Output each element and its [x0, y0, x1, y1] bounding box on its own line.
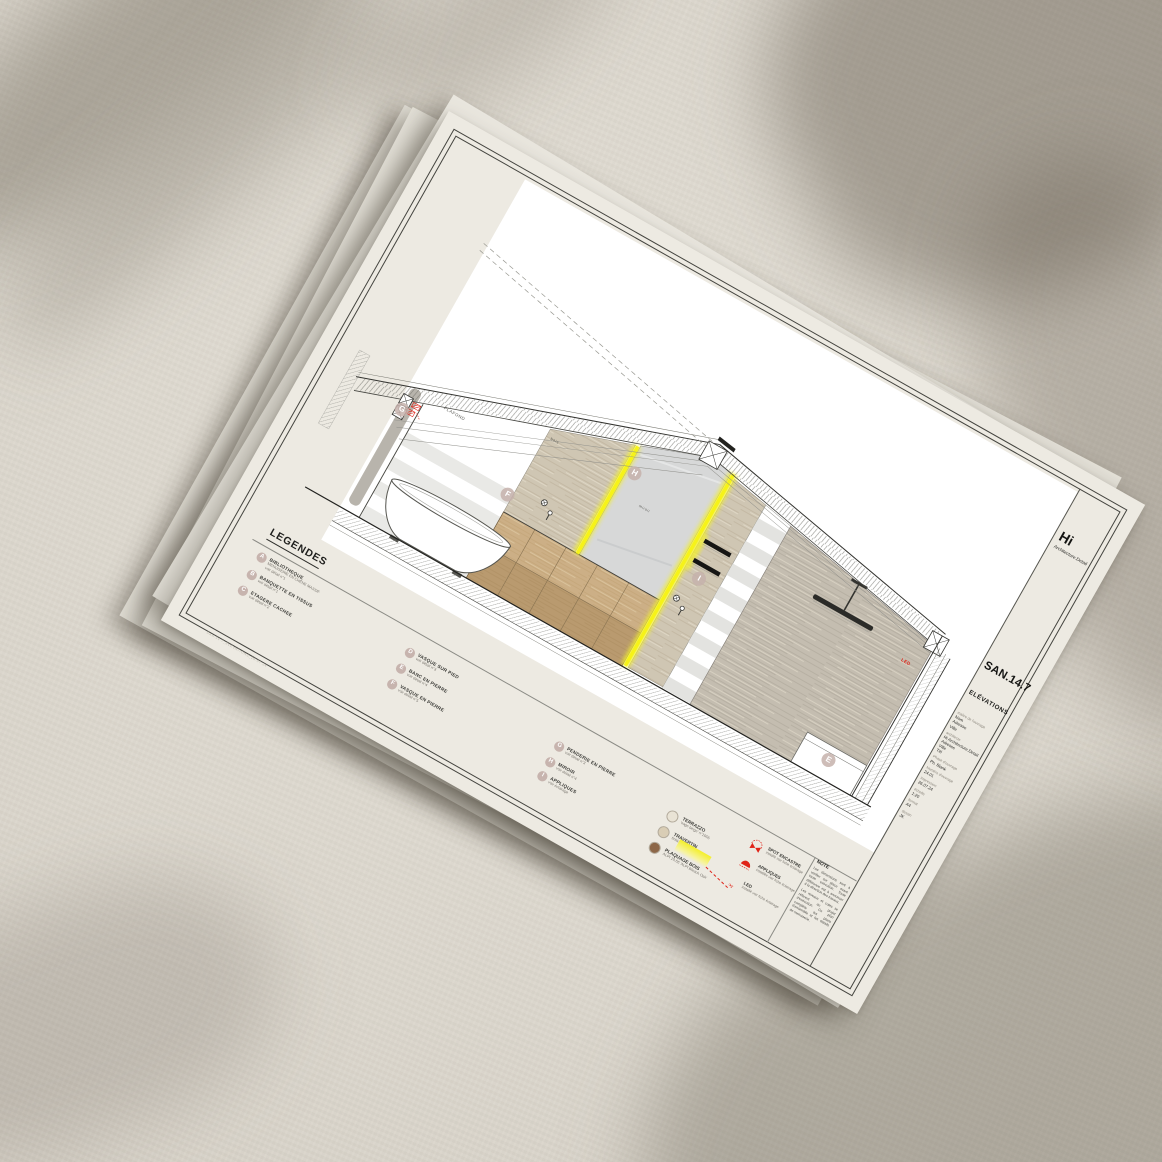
photo-scene: PLAFOND bois miroir LED G F H I E LEGEND…	[0, 0, 1162, 1162]
paper-stack: PLAFOND bois miroir LED G F H I E LEGEND…	[0, 0, 1162, 1162]
drawing-sheet: PLAFOND bois miroir LED G F H I E LEGEND…	[161, 111, 1145, 1014]
